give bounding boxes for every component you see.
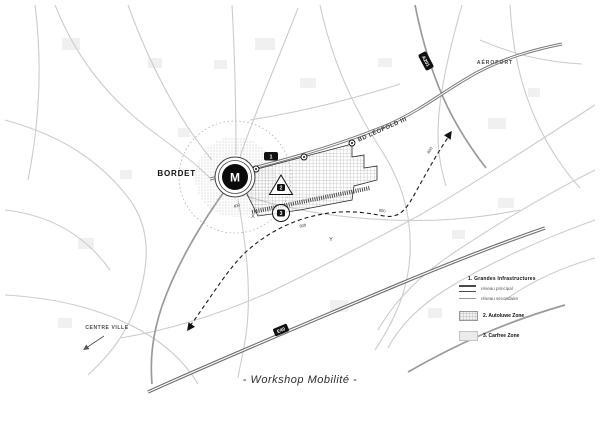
legend-swatch-carfree-zone [459,331,478,341]
shield-a201: A201 [418,51,434,71]
legend-item-zone3: 3. Carfree Zone [459,331,564,341]
waypoint-x-label: X [251,214,255,220]
site-marker-1: 1 [264,152,278,161]
boulevard-label: BD LÉOPOLD III [356,115,408,144]
legend-swatch-autoluwe-zone [459,311,478,321]
route-arrowhead-ne [444,129,455,140]
centre-ville-arrowhead [82,344,90,352]
distance-tag-600-c: 600 [426,145,434,154]
metro-m-icon: M [230,171,240,185]
legend-section2-title: 2. Autoluwe Zone [483,313,524,319]
legend-swatch-secondary-road [459,298,476,299]
map-canvas: M 1 2 3 A201 E40 BORDET BD LÉOPOLD III A… [0,0,600,424]
legend-item-primary-label: réseau principal [481,286,513,291]
legend: 1. Grandes Infrastructures réseau princi… [459,276,564,345]
airport-label: AÉROPORT [477,58,513,66]
site-marker-1-label: 1 [269,155,272,161]
centre-ville-arrow-line [86,336,104,348]
legend-section1-title: 1. Grandes Infrastructures [468,276,564,282]
metro-node: M [215,157,255,197]
legend-item-secondary: réseau secondaire [459,296,564,301]
station-label: BORDET [157,169,196,178]
site-marker-3: 3 [273,205,290,222]
route-arrowhead-sw [184,322,195,333]
caption: - Workshop Mobilité - [0,374,600,386]
legend-item-zone2: 2. Autoluwe Zone [459,311,564,321]
site-marker-3-label: 3 [280,211,283,217]
distance-tag-600-b: 600 [379,208,387,214]
centre-ville-label: CENTRE VILLE [85,325,128,331]
map-stage: M 1 2 3 A201 E40 BORDET BD LÉOPOLD III A… [0,0,600,424]
legend-item-primary: réseau principal [459,285,564,292]
legend-section3-title: 3. Carfree Zone [483,333,519,339]
distance-tag-600-a: 600 [299,222,307,228]
legend-item-secondary-label: réseau secondaire [481,296,518,301]
legend-swatch-primary-road [459,285,476,292]
site-marker-2-label: 2 [280,186,283,192]
waypoint-y-label: Y [329,237,333,243]
